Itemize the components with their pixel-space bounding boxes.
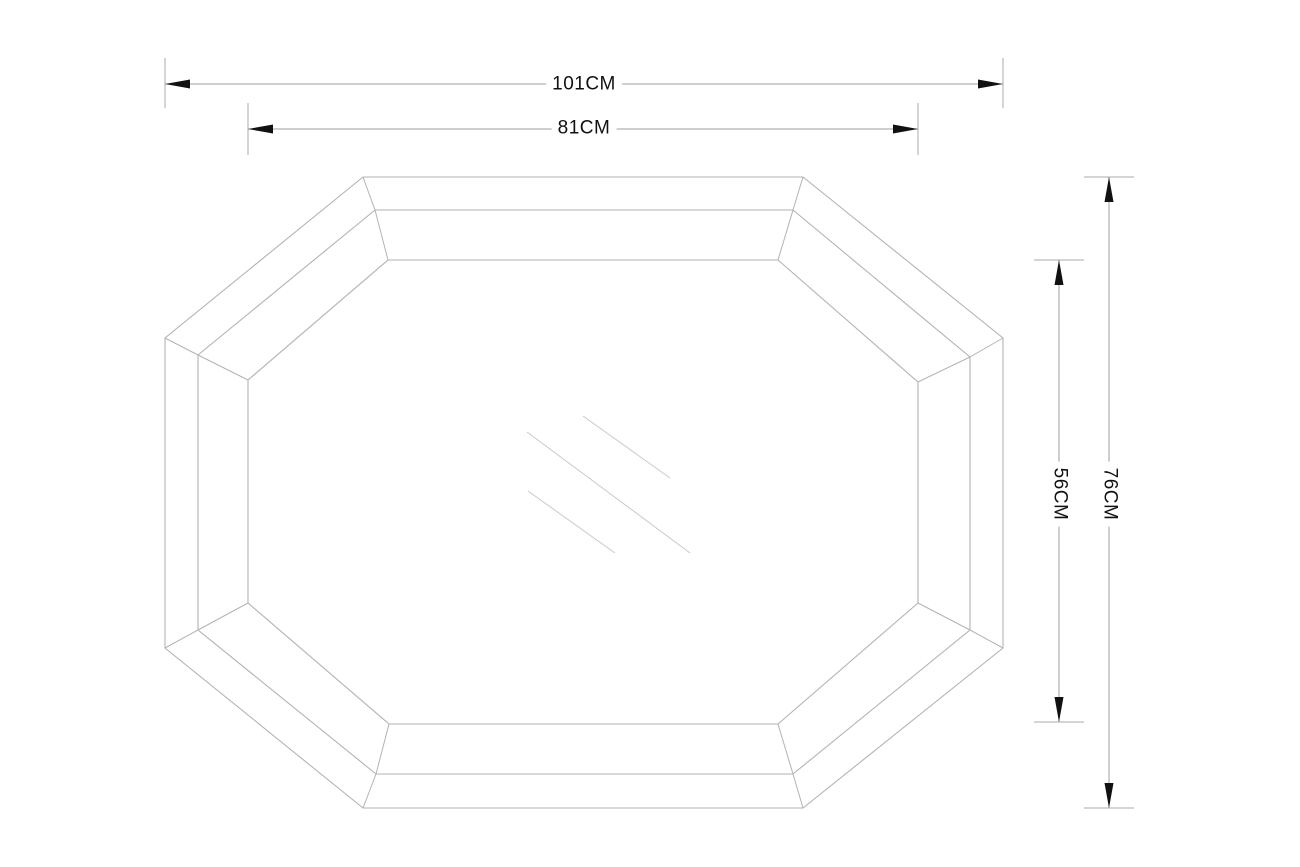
mirror-reflection-line: [527, 432, 690, 553]
outer-height-arrowhead-icon: [1105, 177, 1114, 202]
inner-width-arrowhead-icon: [248, 125, 273, 134]
outer-width-arrowhead-icon: [165, 80, 190, 89]
bevel-miter-line: [376, 724, 389, 774]
frame-miter-line: [363, 774, 376, 808]
inner-height-dimension-label: 56CM: [1049, 462, 1070, 527]
outer-height-arrowhead-icon: [1105, 783, 1114, 808]
outer-octagon-outline: [165, 177, 1003, 808]
bevel-miter-line: [198, 355, 248, 380]
inner-height-arrowhead-icon: [1055, 260, 1064, 285]
frame-miter-line: [970, 630, 1003, 648]
frame-miter-line: [793, 177, 803, 210]
bevel-miter-line: [778, 210, 793, 260]
frame-miter-line: [970, 338, 1003, 357]
frame-miter-line: [165, 630, 198, 648]
outer-width-arrowhead-icon: [978, 80, 1003, 89]
octagonal-mirror-technical-drawing: 101CM 81CM 56CM 76CM: [0, 0, 1300, 867]
middle-octagon-outline: [198, 210, 970, 774]
inner-octagon-outline: [248, 260, 918, 724]
inner-height-arrowhead-icon: [1055, 697, 1064, 722]
mirror-drawing-svg: [0, 0, 1300, 867]
inner-width-arrowhead-icon: [893, 125, 918, 134]
outer-width-dimension-label: 101CM: [546, 75, 622, 96]
bevel-miter-line: [375, 210, 388, 260]
inner-width-dimension-label: 81CM: [552, 119, 617, 140]
bevel-miter-line: [198, 603, 248, 630]
outer-height-dimension-label: 76CM: [1099, 462, 1120, 527]
bevel-miter-line: [918, 603, 970, 630]
bevel-miter-line: [918, 357, 970, 382]
mirror-reflection-line: [528, 491, 615, 553]
frame-miter-line: [165, 338, 198, 355]
bevel-miter-line: [778, 724, 793, 774]
mirror-reflection-line: [583, 416, 670, 478]
frame-miter-line: [793, 774, 803, 808]
frame-miter-line: [363, 177, 375, 210]
